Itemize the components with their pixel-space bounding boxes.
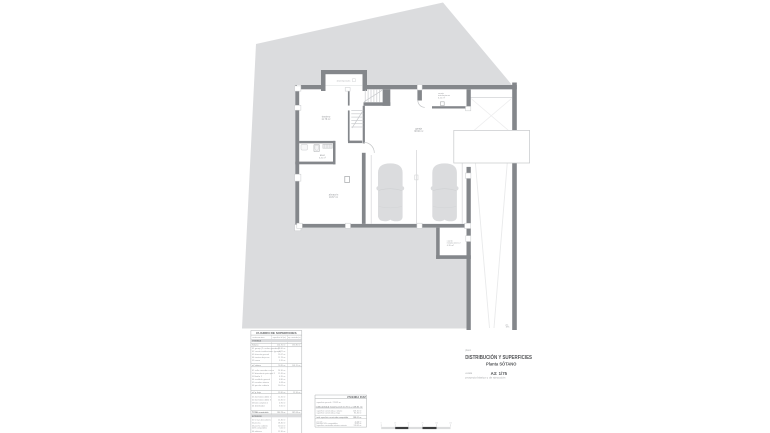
svg-text:19.67 m²: 19.67 m² [329,196,338,199]
svg-text:6.21 m²: 6.21 m² [279,350,286,353]
svg-text:01 terraza descubierta: 01 terraza descubierta [252,418,272,421]
svg-text:05 escalera interior: 05 escalera interior [252,381,269,384]
svg-text:12.45 m²: 12.45 m² [278,372,286,375]
svg-text:VIVIENDA RUIZ: VIVIENDA RUIZ [347,396,366,399]
svg-text:187.08 m²: 187.08 m² [292,411,301,414]
svg-text:3.20 m²: 3.20 m² [279,359,286,362]
svg-text:25: 25 [394,423,396,425]
svg-text:10.45 m²: 10.45 m² [278,398,286,401]
svg-text:214.70 m²: 214.70 m² [277,344,286,347]
svg-text:11.76 m²: 11.76 m² [322,118,331,121]
svg-text:24.30 m²: 24.30 m² [278,369,286,372]
svg-text:18%: 18% [506,327,510,329]
svg-text:estancias: estancias [253,336,265,339]
svg-text:A3: 1/75: A3: 1/75 [491,371,508,376]
svg-text:180.78 m²: 180.78 m² [277,411,286,414]
svg-text:04 trastero bajo esc.: 04 trastero bajo esc. [252,356,270,359]
svg-text:125: 125 [449,423,452,425]
svg-text:EXTERIOR: EXTERIOR [252,416,262,418]
svg-text:38.60 m²: 38.60 m² [278,347,286,350]
svg-text:superficie parcela: superficie parcela [317,401,333,404]
svg-text:6.80 m²: 6.80 m² [279,378,286,381]
svg-text:CUADRO DE SUPERFICIES: CUADRO DE SUPERFICIES [256,331,297,335]
svg-text:plano: plano [465,350,471,352]
svg-text:4.90 m²: 4.90 m² [279,401,286,404]
svg-text:52.36 m²: 52.36 m² [293,391,301,394]
svg-text:m² sótano: m² sótano [252,364,262,367]
svg-text:139.05 m²: 139.05 m² [354,424,362,427]
svg-text:m² p. baja: m² p. baja [252,391,262,394]
svg-text:superficie construida máxima r: superficie construida máxima restante [317,424,347,427]
svg-text:12.30 m²: 12.30 m² [278,430,286,433]
svg-text:VIVIENDA: VIVIENDA [252,340,262,343]
svg-text:11.20 m²: 11.20 m² [278,395,286,398]
svg-text:superficie construida p. baja: superficie construida p. baja [317,412,341,415]
svg-text:3.65 m²: 3.65 m² [279,404,286,407]
svg-text:02 cuarto instalaciones (garaj: 02 cuarto instalaciones (garaje) [252,350,281,353]
svg-text:100: 100 [435,423,438,425]
svg-text:4.68 m²: 4.68 m² [279,381,286,384]
svg-text:213.85 m²: 213.85 m² [333,401,342,404]
svg-text:Sótano: Sótano [252,344,259,347]
svg-text:85.46 m²: 85.46 m² [354,412,362,415]
svg-text:TOTAL construido: TOTAL construido [252,411,269,414]
svg-text:proyecto básico y de ejecución: proyecto básico y de ejecución [465,377,506,380]
svg-text:01 dormitorio doble 2: 01 dormitorio doble 2 [252,395,271,398]
svg-text:70.85 m²: 70.85 m² [278,364,286,367]
svg-text:22.40 m²: 22.40 m² [278,418,286,421]
svg-text:55.80 m²: 55.80 m² [278,391,286,394]
svg-text:03 baño 1: 03 baño 1 [252,375,262,378]
svg-text:0: 0 [381,423,382,425]
svg-text:06 porche cubierto: 06 porche cubierto [252,384,269,387]
svg-text:04 solárium: 04 solárium [252,430,262,433]
svg-text:03 baño completo 2: 03 baño completo 2 [252,401,268,404]
svg-text:escala: escala [465,373,472,375]
svg-text:10.01 m²: 10.01 m² [278,384,286,387]
svg-text:135.80 m²: 135.80 m² [292,344,301,347]
svg-text:75: 75 [422,423,424,425]
svg-text:superficie útil (m²): superficie útil (m²) [273,336,287,339]
svg-text:4.35 m²: 4.35 m² [279,375,286,378]
svg-text:3.20 m²: 3.20 m² [319,157,326,160]
svg-text:01 salón comedor cocina: 01 salón comedor cocina [252,369,275,372]
svg-text:19.67 m²: 19.67 m² [278,353,286,356]
svg-text:103.15 m²: 103.15 m² [292,364,301,367]
svg-text:Planta SÓTANO: Planta SÓTANO [486,360,517,367]
svg-text:18.40 m²: 18.40 m² [278,421,286,424]
svg-text:02 dormitorio principal 1: 02 dormitorio principal 1 [252,372,275,375]
svg-text:5.01 m²: 5.01 m² [280,427,286,430]
svg-text:6.21 m²: 6.21 m² [438,96,445,99]
svg-text:05 aseo: 05 aseo [252,360,260,362]
svg-text:02 piscina: 02 piscina [252,422,261,424]
svg-text:almacén bajo escalera: almacén bajo escalera [337,79,351,82]
svg-text:DISTRIBUCIÓN Y SUPERFICIES: DISTRIBUCIÓN Y SUPERFICIES [465,353,532,361]
svg-text:(50% computable): (50% computable) [252,427,267,430]
svg-text:50: 50 [407,423,409,425]
svg-text:11.76 m²: 11.76 m² [278,356,286,359]
svg-text:02 dormitorio doble 3: 02 dormitorio doble 3 [252,398,271,401]
svg-text:04 distribuidor: 04 distribuidor [252,404,265,407]
svg-text:4.35 m²: 4.35 m² [447,244,454,247]
svg-text:03 almacén general: 03 almacén general [252,353,270,356]
svg-text:38.60 m²: 38.60 m² [414,130,423,133]
svg-text:04 vestíbulo general: 04 vestíbulo general [252,378,271,381]
svg-text:01 garaje (2 coches grandes): 01 garaje (2 coches grandes) [252,347,279,350]
